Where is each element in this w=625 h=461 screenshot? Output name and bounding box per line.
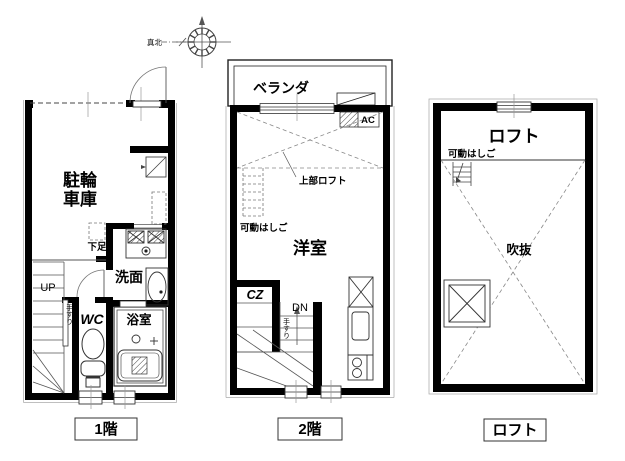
floorplan-page: 真北 [0, 0, 625, 461]
bathtub-icon [118, 350, 162, 381]
entry-slide-door [134, 225, 162, 229]
entrance-door [130, 67, 166, 107]
kitchen-sink-icon [352, 312, 369, 340]
floor1-title: 1階 [94, 420, 117, 438]
washroom-door [77, 270, 104, 297]
kitchen-counter [348, 307, 373, 355]
sink-icon [146, 268, 168, 305]
upper-loft-label: 上部ロフト [299, 175, 347, 187]
floorplan-canvas: 真北 [0, 0, 625, 461]
shoe-cabinet-dashed [89, 223, 105, 240]
kitchen [348, 277, 373, 380]
handrail-label-f2: 手すり [283, 317, 291, 339]
void-label: 吹抜 [506, 242, 532, 257]
closet-cz [237, 303, 272, 352]
down-label: DN [292, 302, 308, 314]
closet-label: CZ [247, 288, 265, 302]
stove-icon [348, 355, 373, 380]
loft-plan: ロフト 可動はしご 吹抜 ロフト [429, 94, 597, 441]
veranda-label: ベランダ [253, 80, 309, 96]
washing-machine-icon [126, 229, 166, 258]
floor2-title: 2階 [298, 420, 321, 438]
western-room-label: 洋室 [293, 238, 327, 258]
toilet-icon [81, 329, 105, 387]
ac-label: AC [361, 115, 375, 126]
loft-room-label: ロフト [489, 127, 540, 146]
loft-hatch-opening [444, 280, 490, 327]
ac-unit: AC [340, 112, 379, 127]
washroom-label: 洗面 [115, 269, 143, 285]
shoe-label: 下足 [87, 242, 107, 253]
loft-window [497, 94, 531, 118]
meter-box-icon [141, 157, 166, 177]
ladder-label-f2: 可動はしご [240, 222, 288, 234]
ladder-label-loft: 可動はしご [448, 148, 496, 160]
cabinet-dashed [152, 192, 166, 224]
compass-icon: 真北 [147, 16, 231, 68]
bath-label: 浴室 [126, 312, 152, 327]
garage-label-line1: 駐輪 [63, 170, 98, 190]
refrigerator-icon [349, 277, 373, 307]
void-outline [441, 160, 585, 384]
floor2-plan: AC 上部ロフト 可動はしご CZ [226, 60, 394, 440]
wc-label: WC [80, 311, 104, 327]
handrail-label-f1: 手すり [66, 303, 74, 325]
ladder-dashed-icon [243, 168, 263, 218]
ladder-icon [453, 162, 471, 186]
upper-loft-outline [237, 112, 383, 168]
loft-title: ロフト [492, 422, 537, 439]
garage-label-line2: 車庫 [63, 189, 97, 209]
north-label: 真北 [147, 37, 162, 47]
up-label: UP [40, 282, 55, 294]
floor1-plan: 駐輪 車庫 下足 洗面 WC 浴室 UP 手すり 1階 [24, 67, 177, 440]
balcony-window [260, 94, 334, 121]
